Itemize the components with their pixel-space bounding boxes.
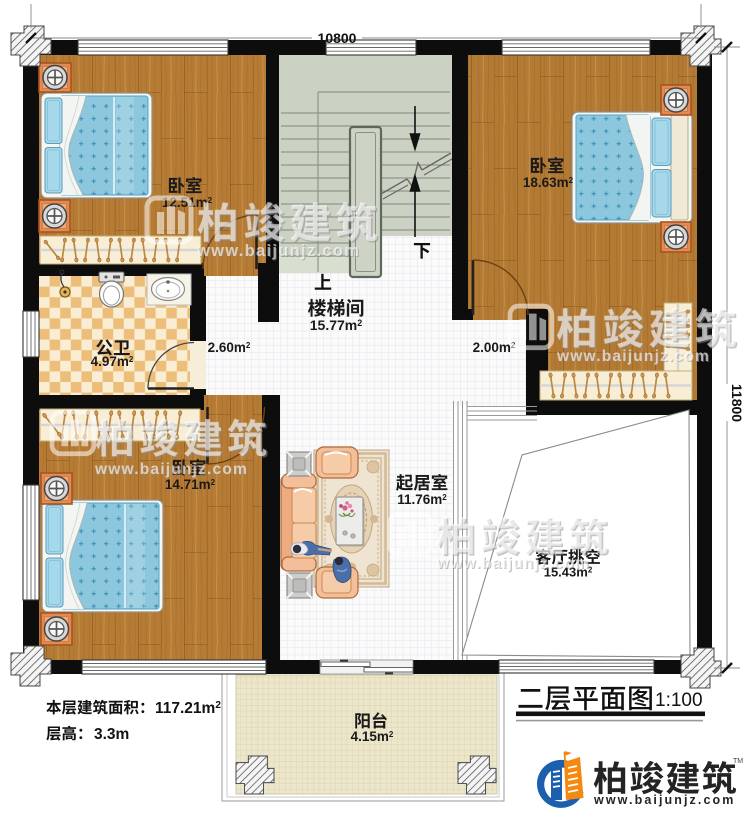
svg-text:4.15m2: 4.15m2 — [351, 729, 394, 744]
svg-text:www.baijunjz.com: www.baijunjz.com — [196, 242, 360, 260]
svg-text:117.21m2: 117.21m2 — [155, 700, 221, 717]
svg-text:11.76m2: 11.76m2 — [397, 492, 447, 507]
svg-text:2.60m2: 2.60m2 — [208, 340, 251, 355]
svg-text:3.3m: 3.3m — [94, 726, 129, 743]
svg-text:4.97m2: 4.97m2 — [91, 354, 134, 369]
svg-text:18.63m2: 18.63m2 — [523, 175, 574, 190]
svg-text:TM: TM — [733, 758, 743, 765]
svg-text:14.71m2: 14.71m2 — [165, 477, 216, 492]
svg-text:www.baijunjz.com: www.baijunjz.com — [556, 348, 710, 365]
svg-text:11800: 11800 — [729, 384, 745, 422]
svg-text:www.baijunjz.com: www.baijunjz.com — [436, 555, 590, 572]
svg-text:10800: 10800 — [318, 30, 357, 46]
svg-text:1:100: 1:100 — [655, 690, 703, 711]
svg-text:15.77m2: 15.77m2 — [310, 317, 363, 333]
svg-text:www.baijunjz.com: www.baijunjz.com — [593, 793, 735, 807]
svg-text:www.baijunjz.com: www.baijunjz.com — [94, 461, 248, 478]
